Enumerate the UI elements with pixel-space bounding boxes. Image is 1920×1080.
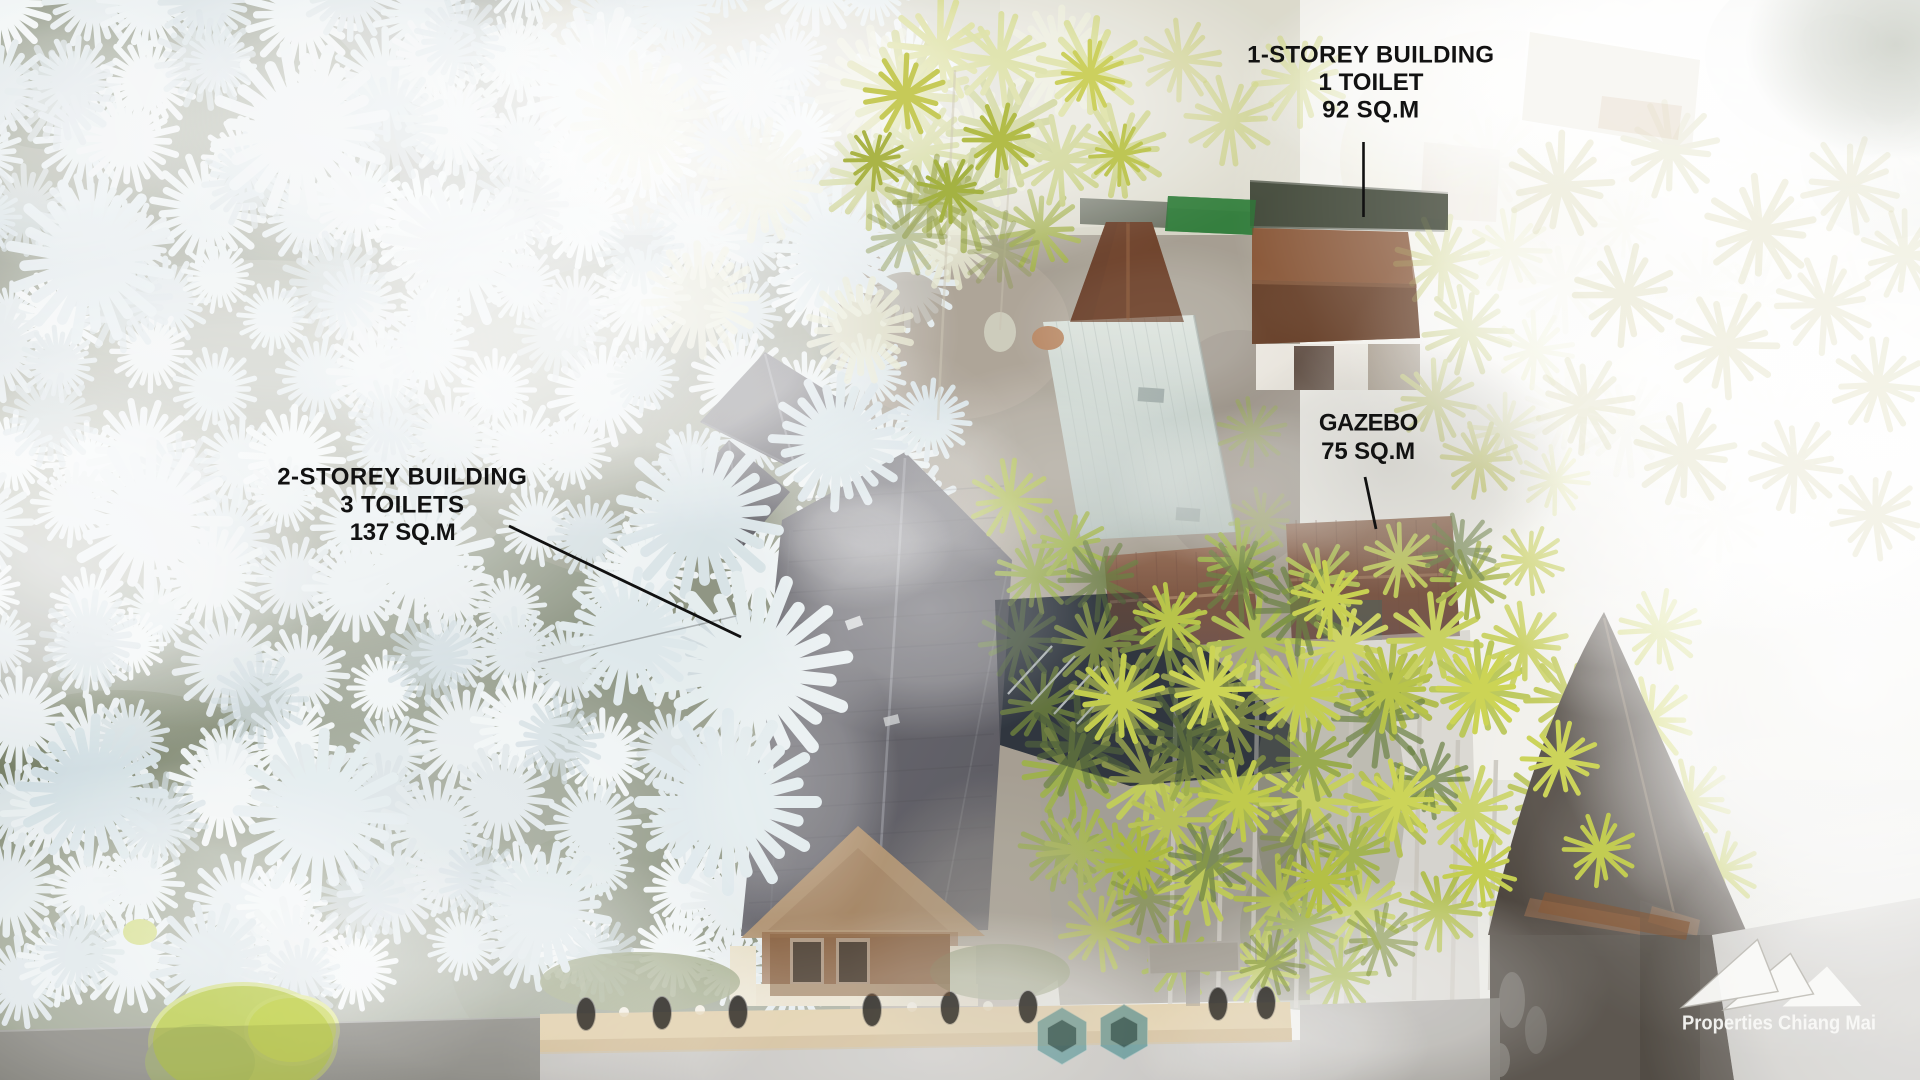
svg-text:1 TOILET: 1 TOILET xyxy=(1319,69,1424,96)
svg-text:3 TOILETS: 3 TOILETS xyxy=(340,491,464,518)
svg-text:Properties Chiang Mai: Properties Chiang Mai xyxy=(1682,1012,1876,1035)
svg-text:137 SQ.M: 137 SQ.M xyxy=(350,519,456,546)
svg-text:75 SQ.M: 75 SQ.M xyxy=(1321,438,1415,465)
svg-text:1-STOREY BUILDING: 1-STOREY BUILDING xyxy=(1247,42,1494,69)
svg-text:2-STOREY BUILDING: 2-STOREY BUILDING xyxy=(277,464,527,491)
svg-text:92 SQ.M: 92 SQ.M xyxy=(1322,97,1419,124)
svg-text:GAZEBO: GAZEBO xyxy=(1319,409,1418,436)
